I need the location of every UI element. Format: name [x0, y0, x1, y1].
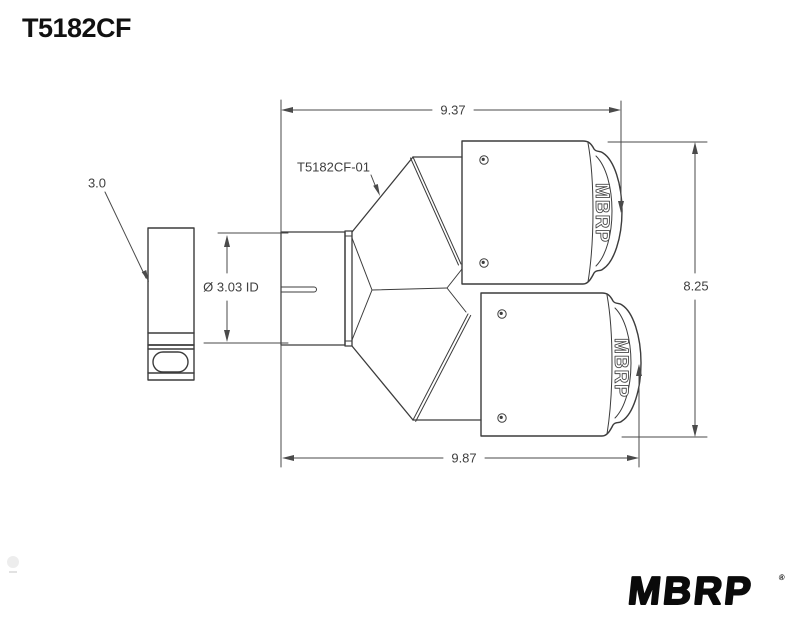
spot-weld-marker — [480, 156, 488, 164]
inlet-pipe — [281, 232, 345, 345]
dimension-top-width-label: 9.37 — [440, 102, 465, 117]
drawing-page: T5182CF 3.0 Ø 3.03 ID — [0, 0, 800, 618]
upper-tip-brand-engraving: MBRP — [591, 183, 612, 243]
technical-drawing: 3.0 Ø 3.03 ID — [0, 0, 800, 618]
dimension-inner-diameter: Ø 3.03 ID — [203, 233, 288, 343]
dimension-id-label: Ø 3.03 ID — [203, 279, 259, 294]
clamp-side-view — [148, 228, 194, 380]
arrowhead-down — [618, 201, 624, 213]
arrowhead-left — [282, 455, 294, 461]
arrowhead-down — [224, 330, 230, 342]
dimension-bottom-width: 9.87 — [282, 364, 642, 467]
spot-weld-marker — [498, 414, 506, 422]
arrowhead-down — [692, 425, 698, 437]
registered-trademark: ® — [778, 573, 785, 582]
spot-weld-marker — [480, 259, 488, 267]
clamp-body — [148, 228, 194, 345]
lower-duct — [352, 290, 481, 421]
leader-arrow — [373, 184, 380, 196]
duct-crotch — [372, 269, 466, 312]
callout-od: 3.0 — [88, 175, 149, 282]
brand-logo: MBRP ® — [626, 570, 785, 613]
arrowhead-left — [281, 107, 293, 113]
part-number-callout: T5182CF-01 — [297, 159, 380, 196]
clamp-band — [148, 345, 194, 380]
arrowhead-up — [692, 142, 698, 154]
arrowhead-up — [224, 235, 230, 247]
upper-duct — [352, 157, 462, 290]
clamp-slot — [153, 352, 188, 372]
dimension-bottom-width-label: 9.87 — [451, 450, 476, 465]
arrowhead-right — [627, 455, 639, 461]
print-smudge — [7, 556, 19, 573]
y-pipe-assembly — [281, 157, 481, 421]
arrowhead-right — [609, 107, 621, 113]
inlet-slot — [281, 287, 317, 292]
lower-tip: MBRP — [481, 293, 641, 436]
brand-logo-text: MBRP — [626, 570, 755, 613]
inlet-band — [345, 231, 352, 346]
part-number-label: T5182CF-01 — [297, 159, 370, 174]
lower-tip-brand-engraving: MBRP — [610, 338, 631, 398]
upper-tip: MBRP — [462, 141, 622, 284]
spot-weld-marker — [498, 310, 506, 318]
dimension-height-label: 8.25 — [683, 278, 708, 293]
callout-od-label: 3.0 — [88, 175, 106, 190]
